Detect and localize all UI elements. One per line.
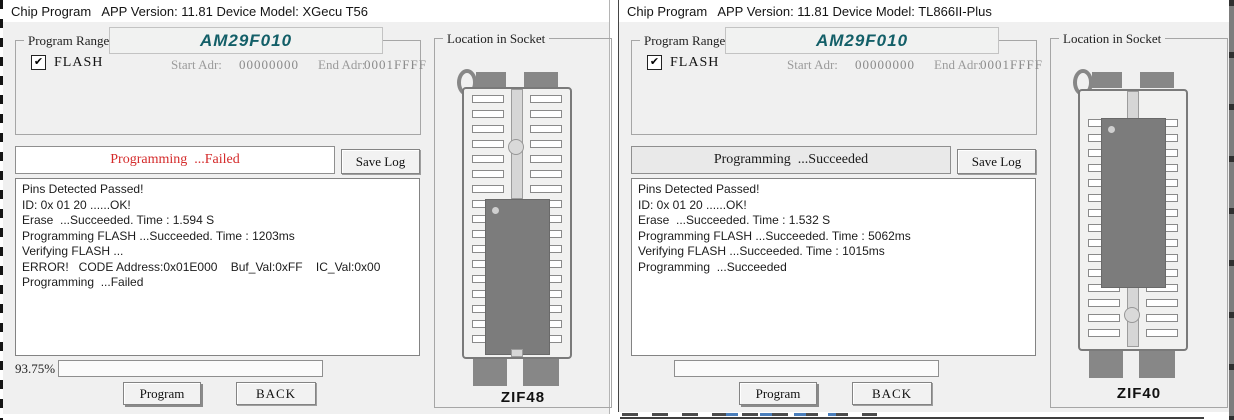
log-output[interactable]: Pins Detected Passed! ID: 0x 01 20 .....…	[631, 178, 1036, 356]
flash-checkbox-label: FLASH	[54, 55, 103, 71]
flash-checkbox-label: FLASH	[670, 55, 719, 71]
socket-channel-stub	[511, 349, 523, 357]
chip-name-banner: AM29F010	[725, 27, 999, 54]
right-edge-window-strip	[1229, 0, 1234, 420]
progress-bar	[674, 360, 939, 377]
end-adr-label: End Adr:	[318, 57, 365, 73]
start-adr-label: Start Adr:	[171, 57, 222, 73]
cropped-rule-line	[620, 417, 1204, 419]
zif-socket-graphic: ZIF48	[435, 39, 611, 407]
window-title-bar: Chip Program APP Version: 11.81 Device M…	[3, 0, 609, 22]
left-edge-dashed-border	[0, 0, 3, 420]
socket-top-tab	[1092, 72, 1122, 88]
socket-body	[1078, 89, 1188, 351]
end-adr-label: End Adr:	[934, 57, 981, 73]
progress-percent: 93.75%	[15, 361, 55, 377]
socket-body	[462, 87, 572, 359]
start-adr-value: 00000000	[855, 57, 915, 73]
chip-in-socket	[1101, 118, 1166, 288]
chip-program-window-tl866ii-plus: Chip Program APP Version: 11.81 Device M…	[618, 0, 1230, 412]
socket-top-tab	[476, 72, 506, 88]
socket-screw-icon	[1124, 307, 1140, 323]
status-bar: Programming ...Succeeded	[631, 146, 951, 174]
flash-checkbox[interactable]: ✔	[31, 55, 46, 70]
end-adr-value: 0001FFFF	[364, 57, 427, 73]
socket-top-tab	[1140, 72, 1174, 88]
log-output[interactable]: Pins Detected Passed! ID: 0x 01 20 .....…	[15, 178, 420, 356]
program-range-label: Program Range	[640, 33, 729, 49]
socket-screw-icon	[508, 139, 524, 155]
program-range-label: Program Range	[24, 33, 113, 49]
flash-row: ✔FLASH	[31, 54, 103, 69]
socket-type-label: ZIF48	[435, 389, 611, 406]
socket-bottom-tab	[523, 359, 559, 386]
socket-bottom-tab	[1139, 351, 1175, 378]
socket-type-label: ZIF40	[1051, 385, 1227, 402]
location-in-socket-group: Location in Socket ZIF40	[1050, 38, 1228, 408]
zif-socket-graphic: ZIF40	[1051, 39, 1227, 407]
end-adr-value: 0001FFFF	[980, 57, 1043, 73]
status-bar: Programming ...Failed	[15, 146, 335, 174]
program-button[interactable]: Program	[739, 382, 817, 405]
window-title: Chip Program APP Version: 11.81 Device M…	[627, 4, 992, 19]
start-adr-value: 00000000	[239, 57, 299, 73]
socket-top-tab	[524, 72, 558, 88]
window-title: Chip Program APP Version: 11.81 Device M…	[11, 4, 368, 19]
back-button[interactable]: BACK	[852, 382, 932, 405]
pin1-dot	[1108, 126, 1115, 133]
flash-checkbox[interactable]: ✔	[647, 55, 662, 70]
progress-bar	[58, 360, 323, 377]
save-log-button[interactable]: Save Log	[957, 149, 1036, 174]
chip-in-socket	[485, 199, 550, 355]
back-button[interactable]: BACK	[236, 382, 316, 405]
chip-name-banner: AM29F010	[109, 27, 383, 54]
save-log-button[interactable]: Save Log	[341, 149, 420, 174]
socket-bottom-tab	[473, 359, 507, 386]
flash-row: ✔FLASH	[647, 54, 719, 69]
window-title-bar: Chip Program APP Version: 11.81 Device M…	[619, 0, 1230, 22]
cropped-link-marks	[726, 413, 836, 416]
socket-channel	[1127, 91, 1139, 119]
start-adr-label: Start Adr:	[787, 57, 838, 73]
program-button[interactable]: Program	[123, 382, 201, 405]
pin1-dot	[492, 207, 499, 214]
location-in-socket-group: Location in Socket ZIF48	[434, 38, 612, 408]
bottom-cropped-text-artifact	[618, 412, 1229, 420]
chip-program-window-xgecu-t56: Chip Program APP Version: 11.81 Device M…	[3, 0, 610, 414]
socket-bottom-tab	[1089, 351, 1123, 378]
